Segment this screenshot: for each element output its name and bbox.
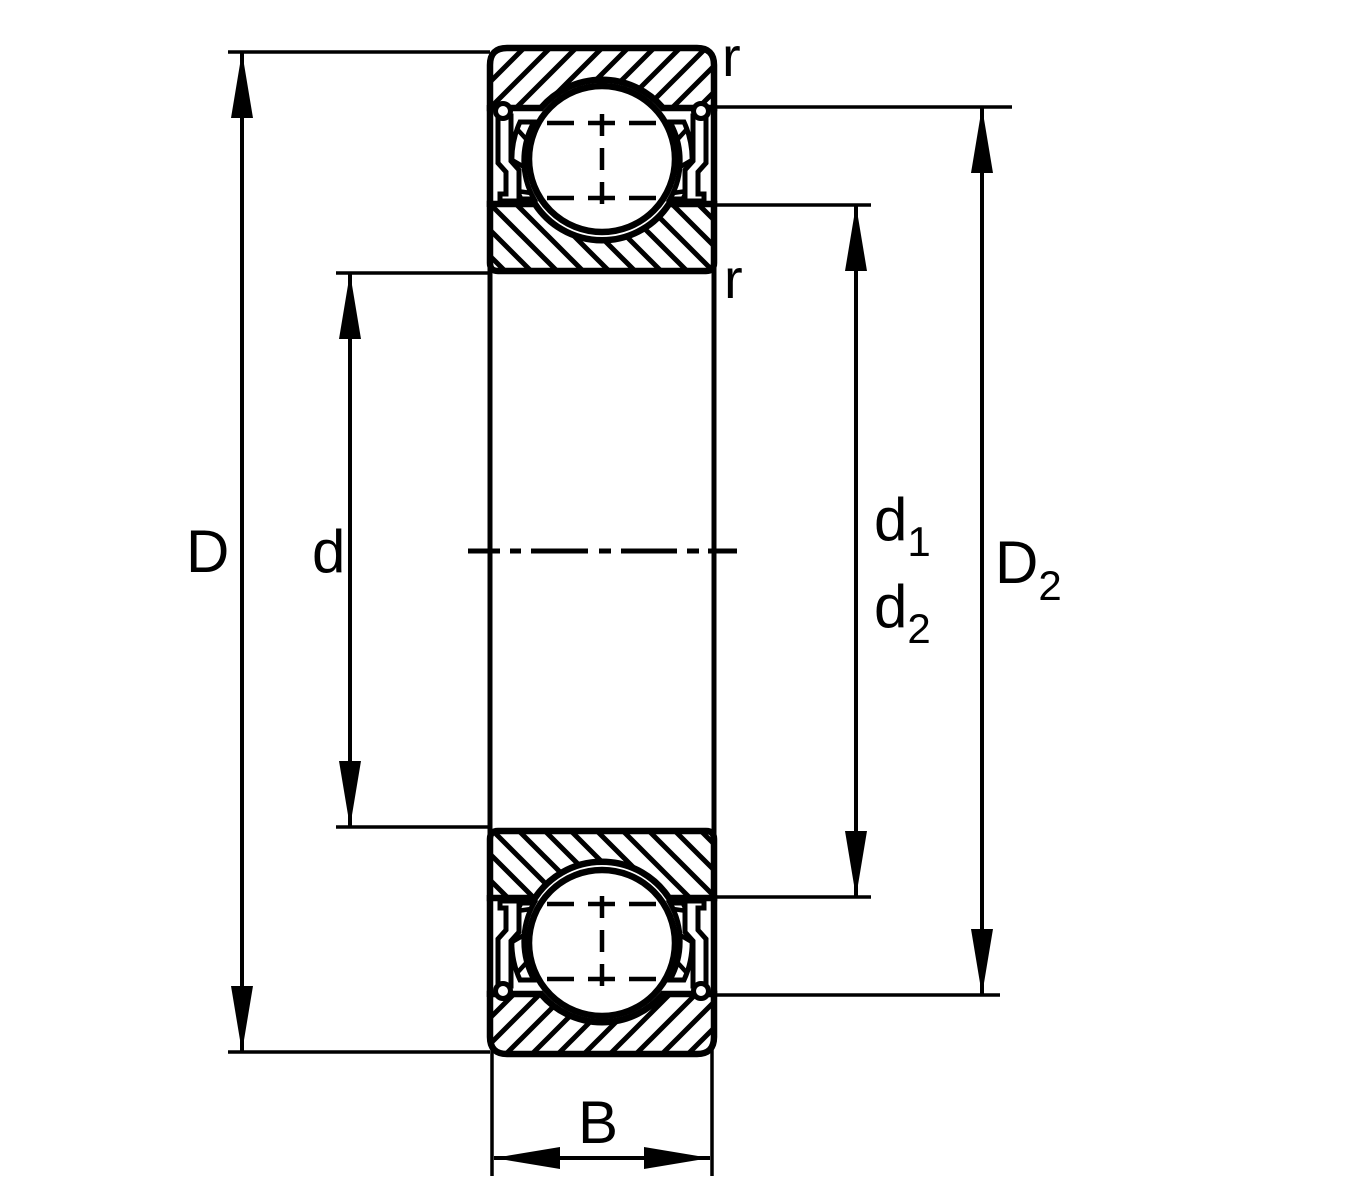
arrowhead-B-left bbox=[494, 1147, 560, 1169]
label-D2-subscript: 2 bbox=[1038, 562, 1061, 609]
label-B: B bbox=[578, 1089, 618, 1156]
label-r-outer: r bbox=[722, 25, 741, 88]
label-D: D bbox=[186, 518, 229, 585]
label-d2: d2 bbox=[874, 573, 931, 652]
arrowhead-B-right bbox=[644, 1147, 710, 1169]
label-d2-base: d bbox=[874, 573, 907, 640]
arrowhead-D-down bbox=[231, 986, 253, 1052]
arrowhead-D2-down bbox=[971, 929, 993, 995]
label-d1-subscript: 1 bbox=[907, 518, 930, 565]
arrowhead-d1-up bbox=[845, 205, 867, 271]
label-r-inner: r bbox=[724, 247, 743, 310]
shield-curl-left-bottom bbox=[496, 984, 511, 999]
shield-curl-left-top bbox=[496, 104, 511, 119]
drawing-canvas: D d d1 d2 D2 B r r bbox=[0, 0, 1350, 1200]
shield-curl-right-top bbox=[694, 104, 709, 119]
label-D2: D2 bbox=[995, 529, 1062, 609]
arrowhead-D-up bbox=[231, 52, 253, 118]
arrowhead-d-up bbox=[339, 273, 361, 339]
shield-curl-right-bottom bbox=[694, 984, 709, 999]
bearing-structure bbox=[468, 48, 737, 1054]
label-d: d bbox=[312, 518, 345, 585]
label-d1-base: d bbox=[874, 486, 907, 553]
bearing-section-drawing: D d d1 d2 D2 B r r bbox=[0, 0, 1350, 1200]
label-D2-base: D bbox=[995, 529, 1038, 596]
arrowhead-d1-down bbox=[845, 831, 867, 897]
arrowhead-d-down bbox=[339, 761, 361, 827]
bearing-bottom-section bbox=[490, 831, 714, 1054]
bearing-top-section bbox=[490, 48, 714, 271]
label-d2-subscript: 2 bbox=[907, 605, 930, 652]
label-d1: d1 bbox=[874, 486, 931, 565]
arrowhead-D2-up bbox=[971, 107, 993, 173]
